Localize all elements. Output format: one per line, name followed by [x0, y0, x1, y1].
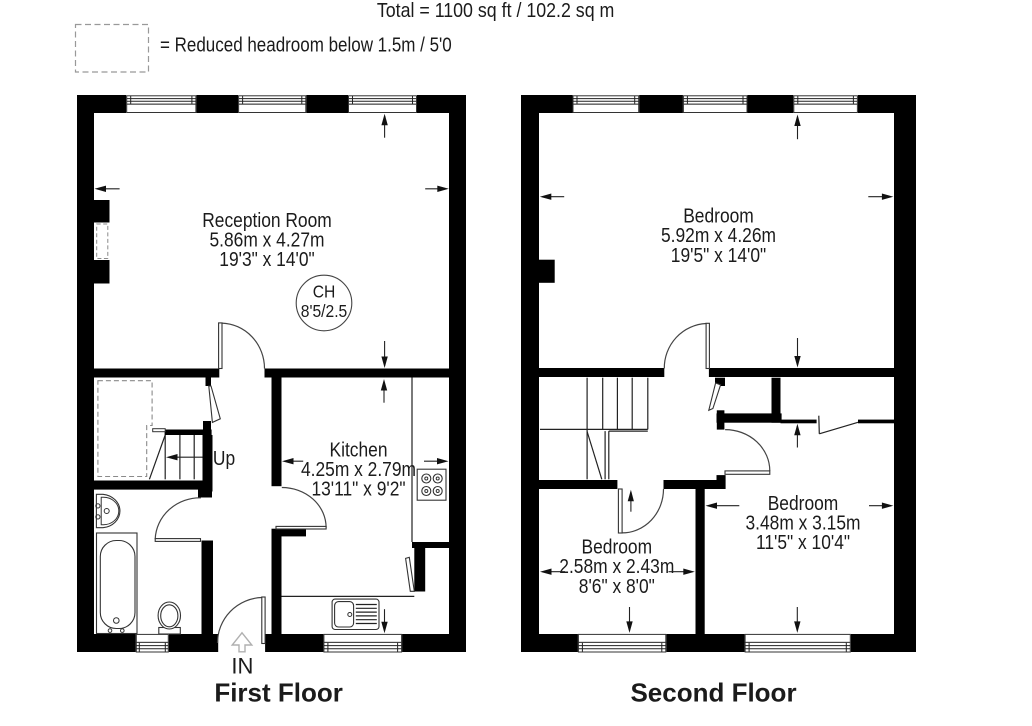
svg-text:IN: IN [231, 654, 253, 679]
svg-text:Second Floor: Second Floor [630, 677, 796, 707]
svg-text:Total = 1100 sq ft / 102.2 sq: Total = 1100 sq ft / 102.2 sq m [377, 0, 615, 22]
svg-text:8'6" x 8'0": 8'6" x 8'0" [579, 575, 655, 597]
svg-text:First Floor: First Floor [214, 677, 343, 707]
svg-text:19'3" x 14'0": 19'3" x 14'0" [219, 248, 314, 270]
svg-text:19'5" x 14'0": 19'5" x 14'0" [671, 244, 766, 266]
svg-text:8'5/2.5: 8'5/2.5 [301, 301, 347, 321]
svg-text:= Reduced headroom below 1.5m: = Reduced headroom below 1.5m / 5'0 [160, 33, 452, 56]
svg-text:11'5" x 10'4": 11'5" x 10'4" [756, 531, 850, 553]
svg-text:Up: Up [213, 447, 235, 469]
svg-text:CH: CH [313, 281, 336, 301]
svg-text:13'11" x 9'2": 13'11" x 9'2" [311, 477, 405, 499]
